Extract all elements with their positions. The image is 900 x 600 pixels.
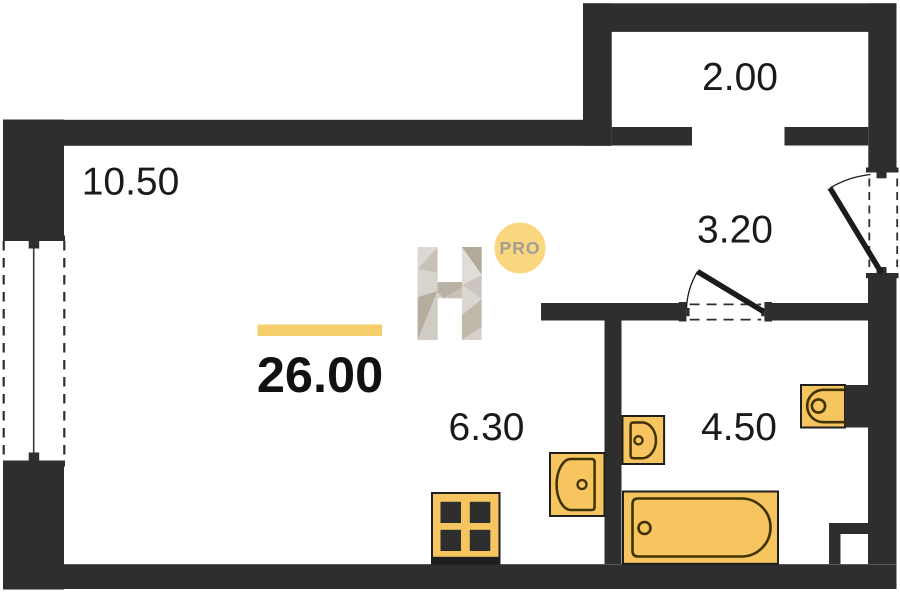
- svg-text:6.30: 6.30: [449, 406, 525, 449]
- svg-text:26.00: 26.00: [257, 346, 383, 403]
- svg-text:10.50: 10.50: [82, 161, 180, 204]
- svg-text:PRO: PRO: [500, 238, 541, 258]
- svg-text:2.00: 2.00: [702, 56, 778, 99]
- svg-text:3.20: 3.20: [697, 209, 773, 252]
- svg-text:4.50: 4.50: [701, 406, 777, 449]
